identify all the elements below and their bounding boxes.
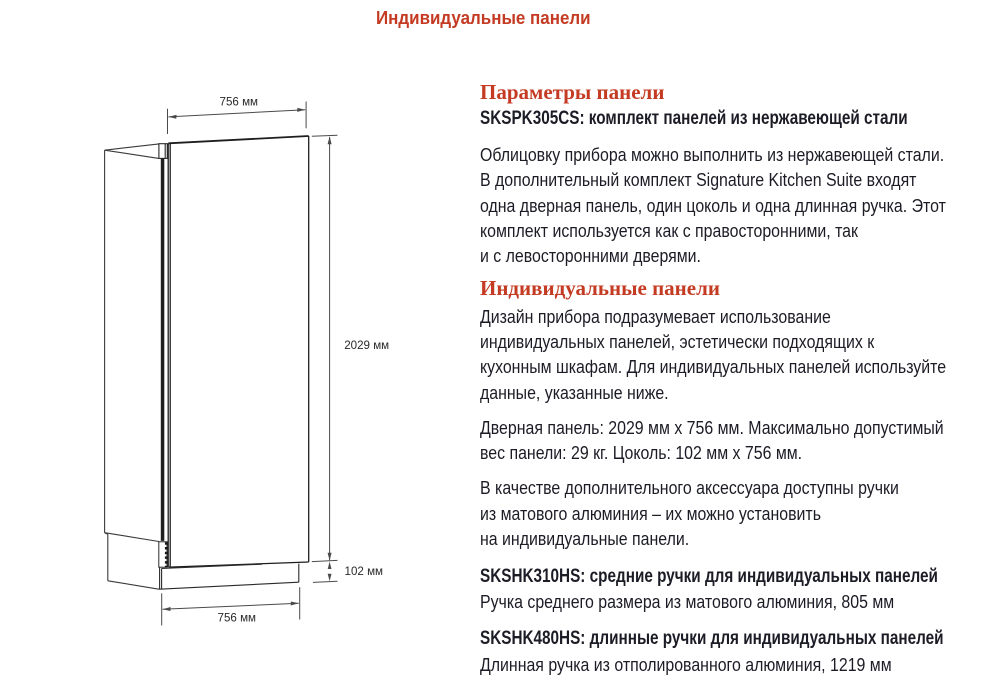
svg-text:756 мм: 756 мм (218, 611, 257, 624)
svg-text:2029 мм: 2029 мм (344, 339, 389, 352)
svg-text:756 мм: 756 мм (220, 95, 259, 108)
svg-text:102 мм: 102 мм (345, 565, 384, 578)
